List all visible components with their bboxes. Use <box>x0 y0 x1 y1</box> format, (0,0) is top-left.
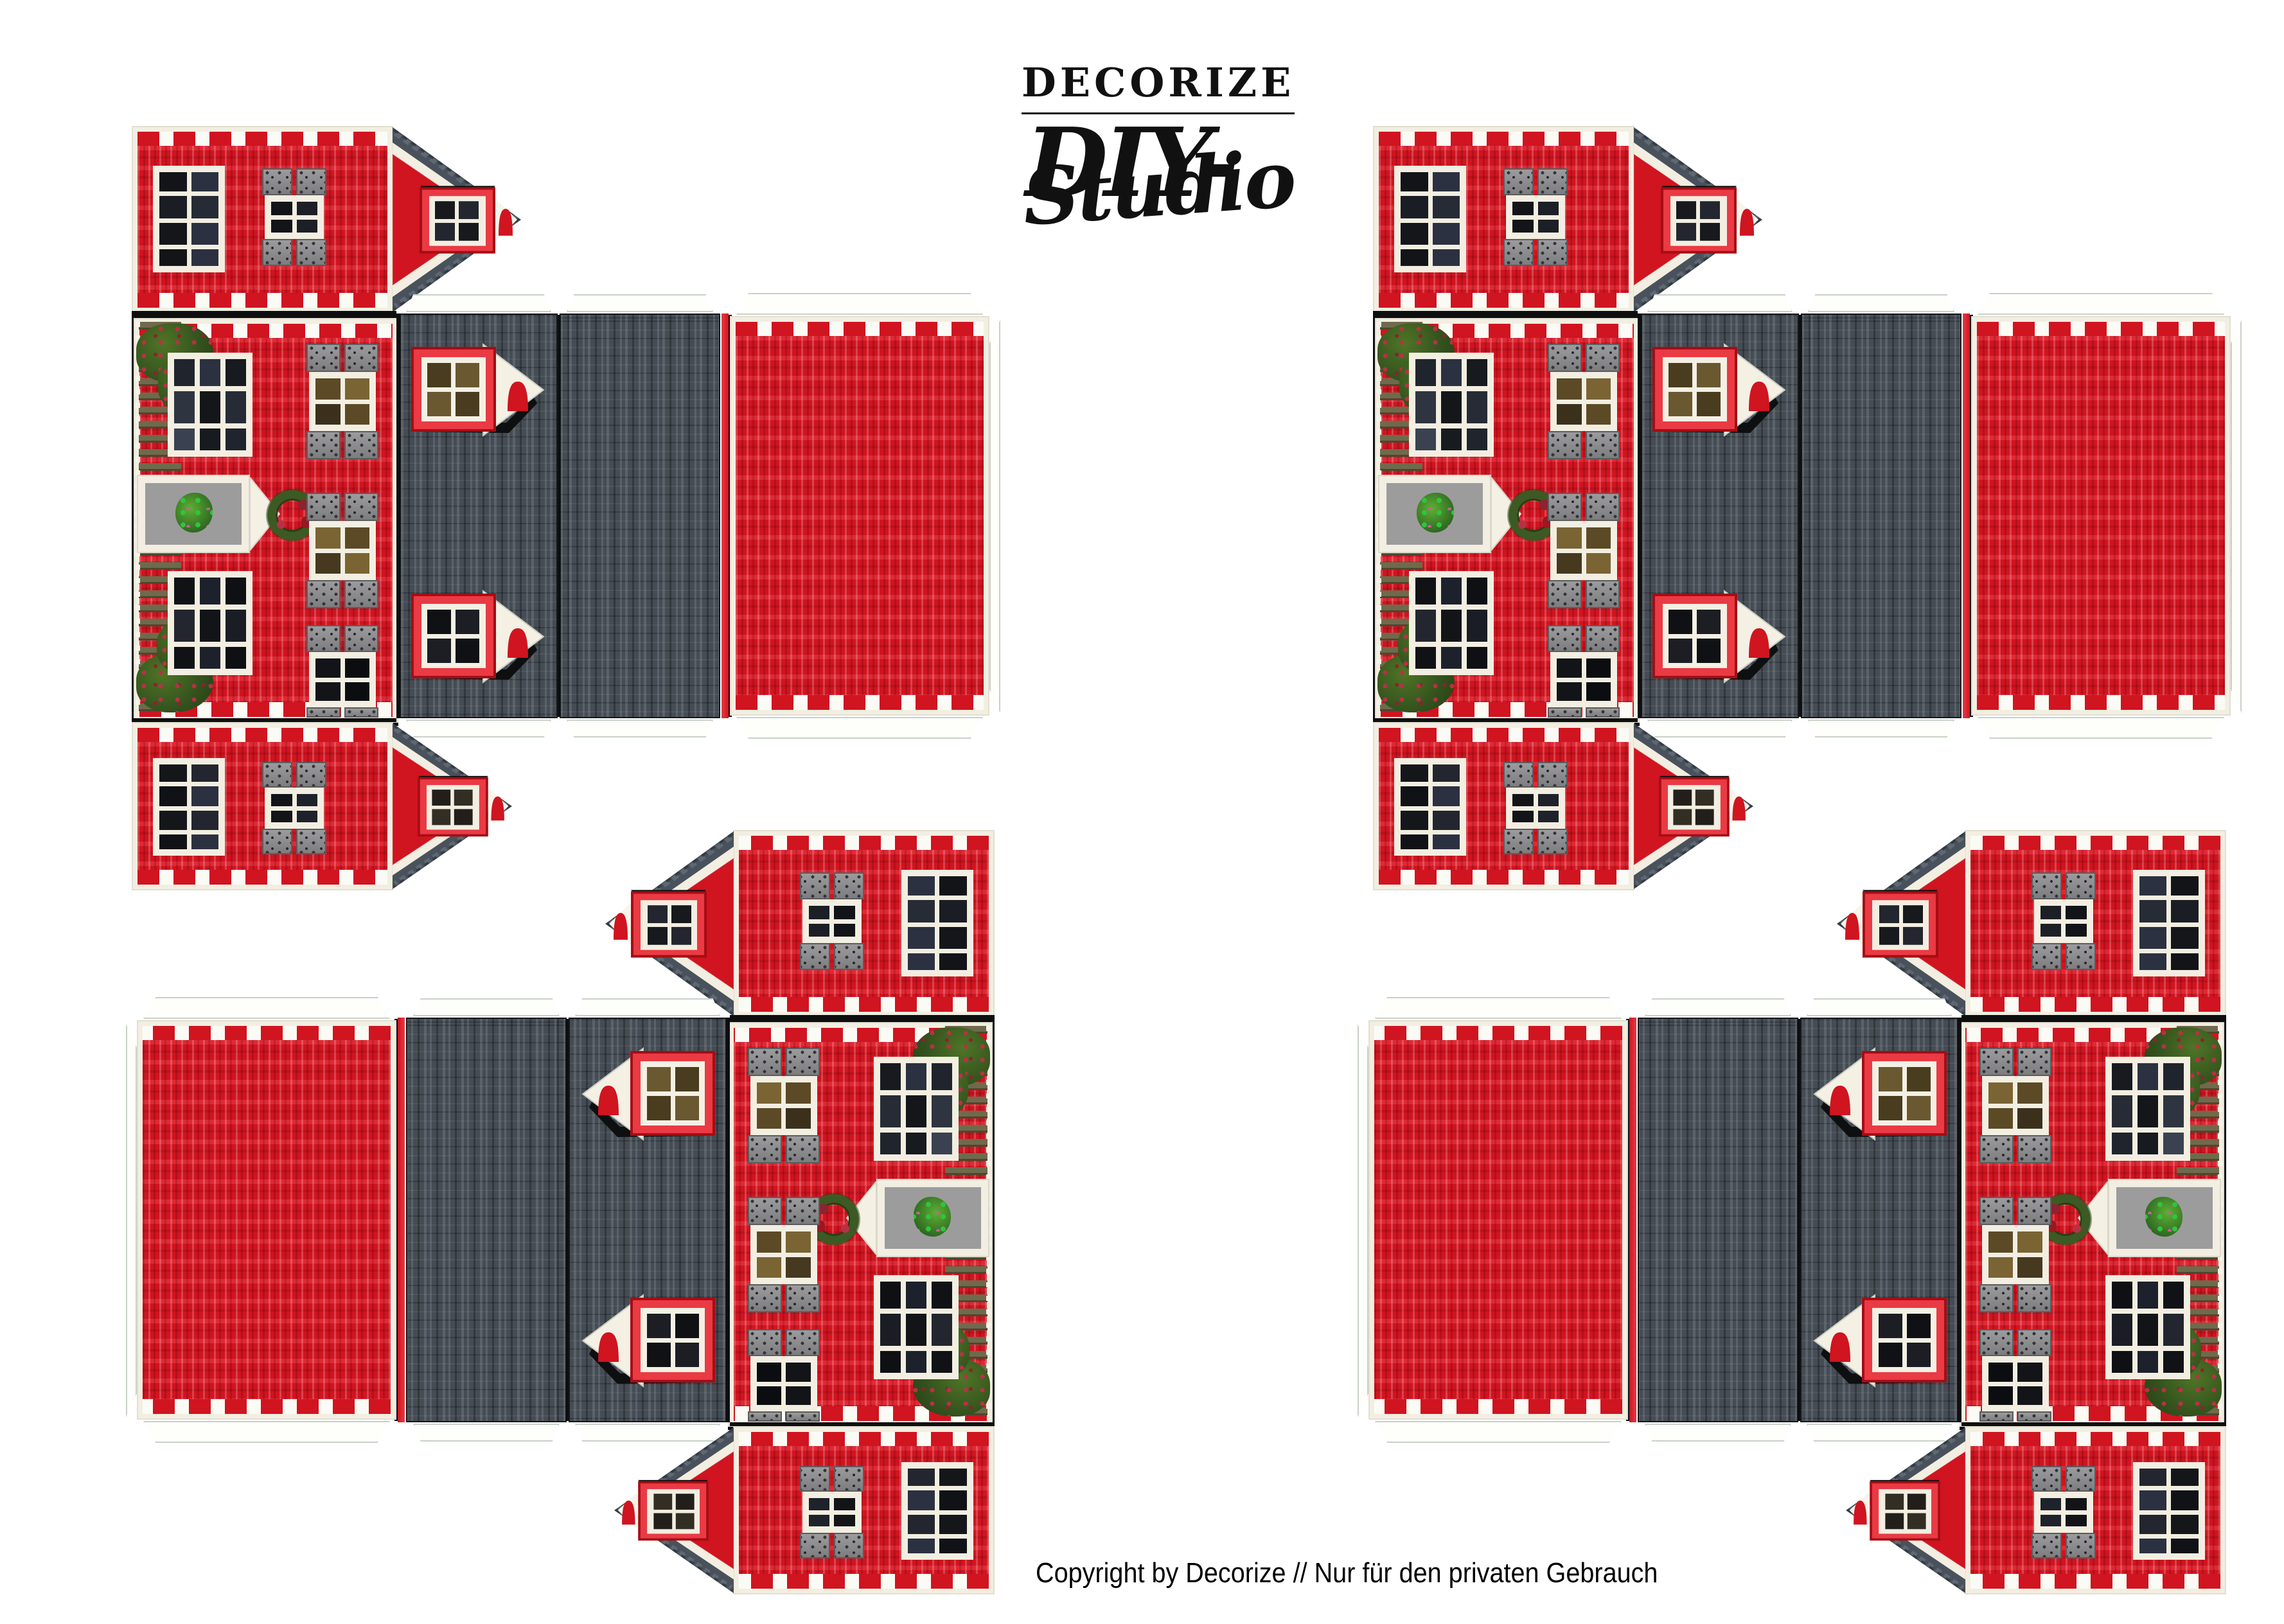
gable-triangle <box>393 127 521 312</box>
roof-dormer <box>1652 588 1787 685</box>
window-9pane <box>1409 571 1494 675</box>
shuttered-window <box>1548 625 1620 718</box>
window-pane <box>1415 647 1436 669</box>
window-pane <box>1557 553 1582 574</box>
gable-triangle <box>614 1427 734 1593</box>
shutter-bottom <box>344 431 378 459</box>
shutter-top <box>262 168 292 195</box>
wall-teeth-bottom <box>137 293 387 308</box>
brand-script-studio: Studio <box>1021 148 1300 229</box>
wall-teeth-top <box>1977 322 2225 337</box>
window-pane <box>1401 223 1428 245</box>
wall-teeth-bottom <box>143 1399 391 1414</box>
window-pane <box>1512 811 1534 823</box>
cut-line <box>1798 1019 1800 1421</box>
window-pane <box>297 794 318 806</box>
window-pane <box>757 1231 782 1253</box>
window-pane <box>1441 578 1462 605</box>
shutter-top <box>800 872 830 899</box>
shutter-top <box>344 625 378 652</box>
window-4pane <box>1982 1076 2049 1135</box>
window-pane <box>200 610 220 642</box>
roof-panel-b <box>560 313 720 718</box>
window-pane <box>908 1515 935 1535</box>
window-pane <box>297 220 318 233</box>
shutter-top <box>786 1048 820 1076</box>
window-4pane <box>750 1225 817 1284</box>
window-pane <box>1401 786 1428 806</box>
window-pane <box>191 172 219 191</box>
shutter-bottom <box>306 707 341 718</box>
window-pane <box>2112 1282 2132 1309</box>
shuttered-window <box>1548 344 1620 459</box>
window-pane <box>1538 220 1559 233</box>
window-pane <box>2138 1095 2158 1127</box>
window-pane <box>1433 811 1460 831</box>
window-pane <box>940 1539 968 1553</box>
gable-wall-top <box>733 830 995 1018</box>
roof-edge-sliver <box>721 313 729 718</box>
wreath-berries <box>1518 520 1527 529</box>
window-pane <box>932 1095 952 1127</box>
door-plant <box>2145 1197 2182 1237</box>
wall-teeth-top <box>739 1432 989 1447</box>
shutter-top <box>306 493 341 521</box>
window-pane <box>1433 764 1460 782</box>
window-pane <box>1538 202 1559 215</box>
window-pane <box>226 428 246 450</box>
window-4pane <box>802 899 862 943</box>
window-pane <box>2018 1386 2043 1406</box>
wall-teeth-bottom <box>1374 1399 1622 1414</box>
cut-line <box>1373 311 1638 315</box>
shutter-top <box>834 872 864 899</box>
shutter-bottom <box>1586 707 1620 718</box>
shuttered-window <box>748 1329 820 1422</box>
shuttered-window <box>2032 872 2096 970</box>
wall-teeth-top <box>739 836 989 851</box>
glue-tab <box>1978 293 2224 315</box>
window-4pane <box>750 1076 817 1135</box>
window-pane <box>1467 578 1487 605</box>
window-pane <box>1586 404 1611 425</box>
window-pane <box>159 764 187 782</box>
window-pane <box>1988 1257 2014 1278</box>
window-4pane <box>1550 521 1617 580</box>
window-pane <box>174 578 195 605</box>
window-pane <box>315 682 341 702</box>
window-pane <box>1467 610 1487 642</box>
window-pane <box>315 658 341 678</box>
shutter-bottom <box>1548 707 1582 718</box>
wall-teeth-top <box>1379 132 1629 146</box>
window-pane <box>1433 223 1460 245</box>
window-pane <box>2163 1351 2184 1373</box>
window-pane <box>315 404 341 425</box>
window-pane <box>200 578 220 605</box>
window-pane <box>1586 378 1611 400</box>
window-pane <box>2041 1515 2062 1527</box>
window-pane <box>2041 1498 2062 1510</box>
window-pane <box>200 391 220 423</box>
window-pane <box>174 391 195 423</box>
window-pane <box>940 876 968 896</box>
window-pane <box>1538 811 1559 823</box>
cut-line <box>558 315 560 717</box>
shuttered-window <box>1503 168 1568 266</box>
window-pane <box>2139 1515 2167 1535</box>
window-pane <box>1441 647 1462 669</box>
shutter-top <box>1537 762 1568 788</box>
glue-tab <box>1808 719 1954 737</box>
window-pane <box>940 953 968 970</box>
window-pane <box>908 927 935 949</box>
house-facade <box>1960 1019 2226 1430</box>
glue-tab <box>1375 1421 1622 1443</box>
window-4pane <box>2034 1492 2093 1533</box>
roof-dormer <box>580 1293 715 1389</box>
glue-tab <box>413 1424 560 1442</box>
window-pane <box>908 1539 935 1553</box>
shutter-bottom <box>306 580 341 608</box>
roof-panel-b <box>1638 1018 1798 1422</box>
cut-line <box>396 313 400 718</box>
window-pane <box>315 378 341 400</box>
window-pane <box>1557 658 1582 678</box>
window-pane <box>315 553 341 574</box>
shutter-top <box>344 493 378 521</box>
window-pane <box>345 404 370 425</box>
glue-tab <box>143 1421 390 1443</box>
window-pane <box>1441 610 1462 642</box>
window-pane <box>2066 924 2087 937</box>
shutter-top <box>2032 1466 2062 1492</box>
roof-edge-sliver <box>1629 1018 1636 1422</box>
window-pane <box>809 924 830 937</box>
window-pane <box>908 900 935 922</box>
window-pane <box>932 1133 952 1154</box>
window-pane <box>2041 924 2062 937</box>
shutter-bottom <box>2066 943 2096 970</box>
shutter-bottom <box>1548 431 1582 459</box>
window-pane <box>906 1095 926 1127</box>
window-pane <box>2163 1095 2184 1127</box>
shuttered-window <box>748 1048 820 1163</box>
window-pane <box>271 220 292 233</box>
window-pane <box>809 906 830 919</box>
shuttered-window <box>1548 493 1620 608</box>
window-9pane <box>2105 1275 2190 1379</box>
shutter-top <box>1979 1048 2014 1076</box>
window-pane <box>2172 927 2199 949</box>
shutter-bottom <box>1586 580 1620 608</box>
window-pane <box>2139 1469 2167 1486</box>
window-pane <box>1467 647 1487 669</box>
shutter-top <box>1503 762 1534 788</box>
window-pane <box>1441 359 1462 386</box>
window-pane <box>315 527 341 549</box>
window-4pane <box>309 652 376 707</box>
window-pane <box>906 1351 926 1373</box>
window-pane <box>1415 428 1436 450</box>
window-4pane <box>309 521 376 580</box>
brand-logo: DECORIZE DIY- Studio <box>1022 59 1298 229</box>
window-pane <box>191 223 219 245</box>
window-4pane <box>750 1356 817 1411</box>
glue-tab <box>1978 717 2224 739</box>
wreath-berries <box>277 520 285 529</box>
window-pane <box>835 906 856 919</box>
window-pane <box>932 1282 952 1309</box>
window-pane <box>1557 404 1582 425</box>
house-facade <box>132 315 398 726</box>
window-pane <box>1433 196 1460 218</box>
glue-tab <box>1807 998 1952 1016</box>
window-9pane <box>168 571 252 675</box>
window-pane <box>880 1314 901 1346</box>
window-pane <box>906 1063 926 1090</box>
window-pane <box>1401 811 1428 831</box>
window-4pane <box>1506 195 1565 239</box>
shutter-bottom <box>344 707 378 718</box>
glue-tab <box>2231 320 2242 713</box>
window-pane <box>757 1082 782 1104</box>
glue-tab <box>1647 294 1793 312</box>
wall-teeth-top <box>1970 836 2220 851</box>
door-plant <box>914 1197 951 1237</box>
wall-teeth-bottom <box>1379 293 1629 308</box>
roof-dormer <box>1812 1293 1947 1389</box>
shuttered-window <box>306 344 378 459</box>
wall-teeth-bottom <box>739 1574 989 1589</box>
window-pane <box>159 249 187 266</box>
shutter-top <box>748 1048 782 1076</box>
shutter-bottom <box>786 1284 820 1312</box>
window-4pane <box>2034 899 2093 943</box>
gable-wall-top <box>1965 830 2226 1018</box>
glue-tab <box>413 998 560 1016</box>
shuttered-window <box>800 872 864 970</box>
shuttered-window <box>2032 1466 2096 1558</box>
window-pane <box>1512 202 1534 215</box>
shutter-bottom <box>1979 1135 2014 1163</box>
gable-wall-top <box>1373 126 1634 313</box>
window-pane <box>880 1133 901 1154</box>
window-pane <box>345 682 370 702</box>
shutter-top <box>1503 168 1534 195</box>
wall-teeth-top <box>736 322 984 337</box>
front-door-frame <box>137 475 250 553</box>
window-4pane <box>265 195 324 239</box>
window-8pane <box>2133 870 2205 976</box>
window-pane <box>345 527 370 549</box>
window-pane <box>200 359 220 386</box>
wreath-berries <box>841 1224 849 1233</box>
window-pane <box>2172 953 2199 970</box>
shutter-bottom <box>344 580 378 608</box>
shutter-top <box>800 1466 830 1492</box>
window-pane <box>2172 1515 2199 1535</box>
cut-line <box>1961 1015 2226 1019</box>
cut-line <box>132 311 396 315</box>
shutter-bottom <box>800 943 830 970</box>
shutter-top <box>296 762 326 788</box>
window-9pane <box>2105 1057 2190 1161</box>
window-pane <box>2138 1314 2158 1346</box>
window-pane <box>1467 359 1487 386</box>
window-pane <box>835 924 856 937</box>
window-pane <box>297 202 318 215</box>
window-pane <box>1988 1386 2014 1406</box>
window-pane <box>1433 786 1460 806</box>
window-pane <box>271 202 292 215</box>
window-pane <box>932 1314 952 1346</box>
window-4pane <box>802 1492 862 1533</box>
front-door-frame <box>1378 475 1491 553</box>
window-pane <box>932 1351 952 1373</box>
shutter-bottom <box>1979 1284 2014 1312</box>
shuttered-window <box>262 168 326 266</box>
window-pane <box>2139 1490 2167 1510</box>
shutter-top <box>786 1197 820 1225</box>
window-pane <box>345 378 370 400</box>
shutter-top <box>2066 872 2096 899</box>
window-pane <box>159 196 187 218</box>
window-pane <box>2018 1231 2043 1253</box>
gable-wall-top <box>132 126 393 313</box>
shutter-top <box>1548 493 1582 521</box>
window-pane <box>226 647 246 669</box>
shutter-bottom <box>1979 1411 2014 1422</box>
window-pane <box>2018 1363 2043 1382</box>
shutter-bottom <box>834 1533 864 1558</box>
wall-teeth-bottom <box>1970 997 2220 1012</box>
window-pane <box>2018 1082 2043 1104</box>
window-pane <box>908 1469 935 1486</box>
window-pane <box>174 647 195 669</box>
window-pane <box>2139 927 2167 949</box>
window-pane <box>835 1515 856 1527</box>
shuttered-window <box>1979 1048 2051 1163</box>
window-pane <box>2163 1133 2184 1154</box>
shuttered-window <box>1979 1197 2051 1312</box>
window-pane <box>940 1469 968 1486</box>
house-facade <box>1373 315 1640 726</box>
shuttered-window <box>800 1466 864 1558</box>
window-9pane <box>874 1057 959 1161</box>
window-pane <box>226 610 246 642</box>
window-pane <box>1557 378 1582 400</box>
window-pane <box>2172 1539 2199 1553</box>
shutter-top <box>1586 493 1620 521</box>
shutter-top <box>1979 1329 2014 1356</box>
shutter-top <box>2017 1048 2051 1076</box>
window-pane <box>2138 1282 2158 1309</box>
shutter-top <box>344 344 378 372</box>
window-pane <box>200 647 220 669</box>
window-pane <box>2138 1133 2158 1154</box>
glue-tab <box>1645 1424 1791 1442</box>
shutter-bottom <box>1548 580 1582 608</box>
window-pane <box>191 786 219 806</box>
shutter-top <box>1537 168 1568 195</box>
window-pane <box>191 196 219 218</box>
window-pane <box>2172 1490 2199 1510</box>
shutter-bottom <box>2066 1533 2096 1558</box>
window-pane <box>2139 876 2167 896</box>
glue-tab <box>736 717 983 739</box>
window-pane <box>908 876 935 896</box>
roof-edge-sliver <box>1963 313 1970 718</box>
window-4pane <box>1506 788 1565 829</box>
window-9pane <box>1409 353 1494 457</box>
wreath-berries <box>2073 1224 2081 1233</box>
window-pane <box>1441 428 1462 450</box>
window-pane <box>2112 1095 2132 1127</box>
shutter-top <box>834 1466 864 1492</box>
window-pane <box>191 249 219 266</box>
window-pane <box>757 1108 782 1129</box>
wall-teeth-top <box>137 132 387 146</box>
shutter-top <box>1548 344 1582 372</box>
window-pane <box>345 553 370 574</box>
glue-tab <box>1808 294 1954 312</box>
window-pane <box>880 1282 901 1309</box>
window-pane <box>786 1231 811 1253</box>
roof-dormer <box>1652 342 1787 438</box>
glue-tab <box>1375 997 1622 1019</box>
window-pane <box>786 1257 811 1278</box>
cut-line <box>1958 1018 1961 1422</box>
window-pane <box>1988 1231 2014 1253</box>
back-wall-panel <box>730 316 989 716</box>
window-pane <box>1441 391 1462 423</box>
cut-line <box>726 1018 730 1422</box>
window-pane <box>906 1282 926 1309</box>
window-pane <box>1586 527 1611 549</box>
shutter-bottom <box>786 1411 820 1422</box>
shutter-bottom <box>306 431 341 459</box>
window-pane <box>191 764 219 782</box>
window-pane <box>2163 1282 2184 1309</box>
window-pane <box>2112 1063 2132 1090</box>
shutter-top <box>262 762 292 788</box>
window-pane <box>940 900 968 922</box>
glue-tab <box>1645 998 1791 1016</box>
window-pane <box>786 1108 811 1129</box>
wall-teeth-bottom <box>1977 695 2225 710</box>
shutter-bottom <box>834 943 864 970</box>
window-pane <box>908 1490 935 1510</box>
shutter-bottom <box>748 1135 782 1163</box>
wall-teeth-top <box>137 728 387 743</box>
window-pane <box>174 359 195 386</box>
window-pane <box>1988 1108 2014 1129</box>
window-pane <box>786 1363 811 1382</box>
shutter-bottom <box>1503 239 1534 266</box>
wall-teeth-bottom <box>739 997 989 1012</box>
window-pane <box>2138 1351 2158 1373</box>
wall-red-field <box>143 1040 391 1400</box>
gable-triangle <box>1634 127 1762 312</box>
shuttered-window <box>306 493 378 608</box>
window-pane <box>1415 578 1436 605</box>
window-pane <box>880 1095 901 1127</box>
front-door-frame <box>876 1179 989 1257</box>
shuttered-window <box>306 625 378 718</box>
roof-dormer <box>411 342 546 438</box>
window-4pane <box>1982 1356 2049 1411</box>
